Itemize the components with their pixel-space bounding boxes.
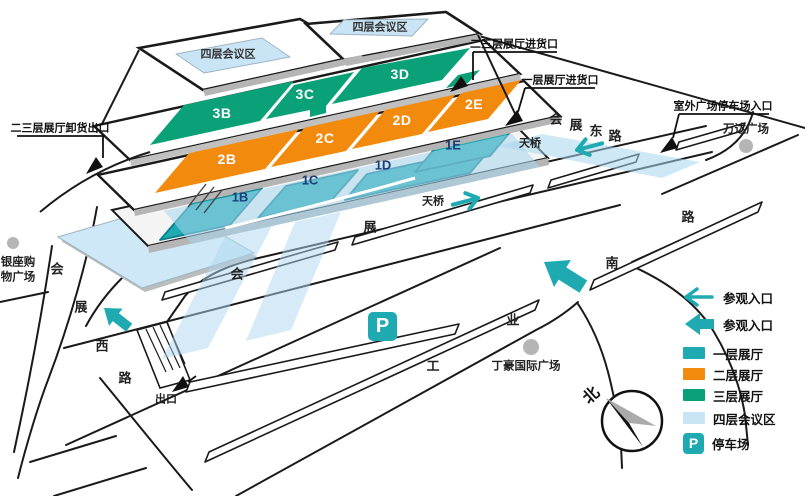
road-east-char-3: 东 — [589, 125, 602, 138]
callout-load1: 一层展厅进货口 — [522, 76, 599, 87]
outdoor-parking-arrowhead — [660, 137, 678, 153]
road-west-char-2: 展 — [74, 301, 87, 314]
hall-1B-label: 1B — [232, 191, 249, 204]
road-east-char-4: 路 — [608, 130, 621, 143]
wanda-plaza-label: 万达广场 — [723, 124, 769, 136]
hall-1E-label: 1E — [445, 139, 461, 152]
dinghao-plaza-label: 丁豪国际广场 — [492, 361, 561, 373]
road-west-char-3: 西 — [95, 340, 108, 353]
legend-item-floor3: 三层展厅 — [683, 384, 763, 406]
orange-swatch-icon — [683, 368, 705, 380]
road-front-char-1: 会 — [230, 268, 243, 281]
thick-arrow-icon — [683, 312, 715, 336]
hall-3B-label: 3B — [213, 106, 232, 120]
road-front-char-2: 展 — [363, 221, 376, 234]
legend-label: 一层展厅 — [713, 344, 763, 363]
hall-2C-label: 2C — [316, 131, 335, 145]
road-east-char-2: 展 — [569, 119, 582, 132]
lightblue-swatch-icon — [683, 412, 705, 424]
yinzuo-plaza-label-2: 物广场 — [1, 272, 36, 284]
yinzuo-plaza-label-1: 银座购 — [1, 257, 36, 269]
legend-item-floor4: 四层会议区 — [683, 407, 776, 429]
parking-icon-letter: P — [689, 435, 698, 451]
parking-badge-letter: P — [376, 315, 389, 338]
parking-badge: P — [368, 312, 397, 341]
venue-map: 四层会议区 四层会议区 3B 3C 3D 2B 2C 2D 2E 1B 1C 1… — [0, 0, 805, 496]
hall-2D-label: 2D — [393, 113, 412, 127]
hall-1D-label: 1D — [375, 159, 392, 172]
road-west-char-1: 会 — [50, 263, 63, 276]
legend-label: 参观入口 — [723, 315, 773, 334]
callout-outdoor-parking: 室外广场停车场入口 — [674, 102, 773, 113]
legend-item-floor1: 一层展厅 — [683, 342, 763, 364]
callout-unload23: 二三层展厅卸货出口 — [11, 124, 110, 135]
hall-1C-label: 1C — [302, 174, 319, 187]
road-south-char-4: 路 — [681, 211, 694, 224]
legend-item-parking: P 停车场 — [683, 432, 750, 454]
dinghao-dot — [523, 339, 539, 355]
legend-label: 参观入口 — [723, 288, 773, 307]
hall-3C-label: 3C — [296, 87, 315, 101]
yinzuo-dot — [7, 237, 19, 249]
hall-2B-label: 2B — [218, 152, 237, 166]
hall-2E-label: 2E — [465, 97, 483, 111]
footbridge-label-mid: 天桥 — [422, 197, 444, 208]
road-south-char-2: 业 — [506, 314, 519, 327]
green-swatch-icon — [683, 389, 705, 401]
thin-arrow-icon — [683, 287, 715, 307]
road-west-char-4: 路 — [118, 372, 131, 385]
legend-label: 四层会议区 — [713, 409, 776, 428]
exit-label: 出口 — [155, 395, 177, 406]
parking-icon: P — [683, 433, 704, 454]
wanda-dot — [739, 139, 753, 153]
legend-label: 停车场 — [712, 434, 750, 453]
legend-item-entrance-thin: 参观入口 — [683, 286, 773, 308]
legend-label: 二层展厅 — [713, 365, 763, 384]
footbridge-label-east: 天桥 — [519, 139, 541, 150]
hall-3D-label: 3D — [391, 67, 410, 81]
legend-item-floor2: 二层展厅 — [683, 363, 763, 385]
road-south-char-1: 工 — [426, 360, 439, 373]
road-east-char-1: 会 — [549, 113, 562, 126]
teal-swatch-icon — [683, 347, 705, 359]
road-south-char-3: 南 — [605, 257, 618, 270]
conference-label-right: 四层会议区 — [353, 23, 408, 34]
callout-load23: 二三层展厅进货口 — [470, 40, 558, 51]
compass — [602, 391, 662, 451]
legend-item-entrance-thick: 参观入口 — [683, 313, 773, 335]
legend-label: 三层展厅 — [713, 386, 763, 405]
conference-label-left: 四层会议区 — [201, 50, 256, 61]
entrance-arrow-south-icon — [536, 248, 592, 300]
